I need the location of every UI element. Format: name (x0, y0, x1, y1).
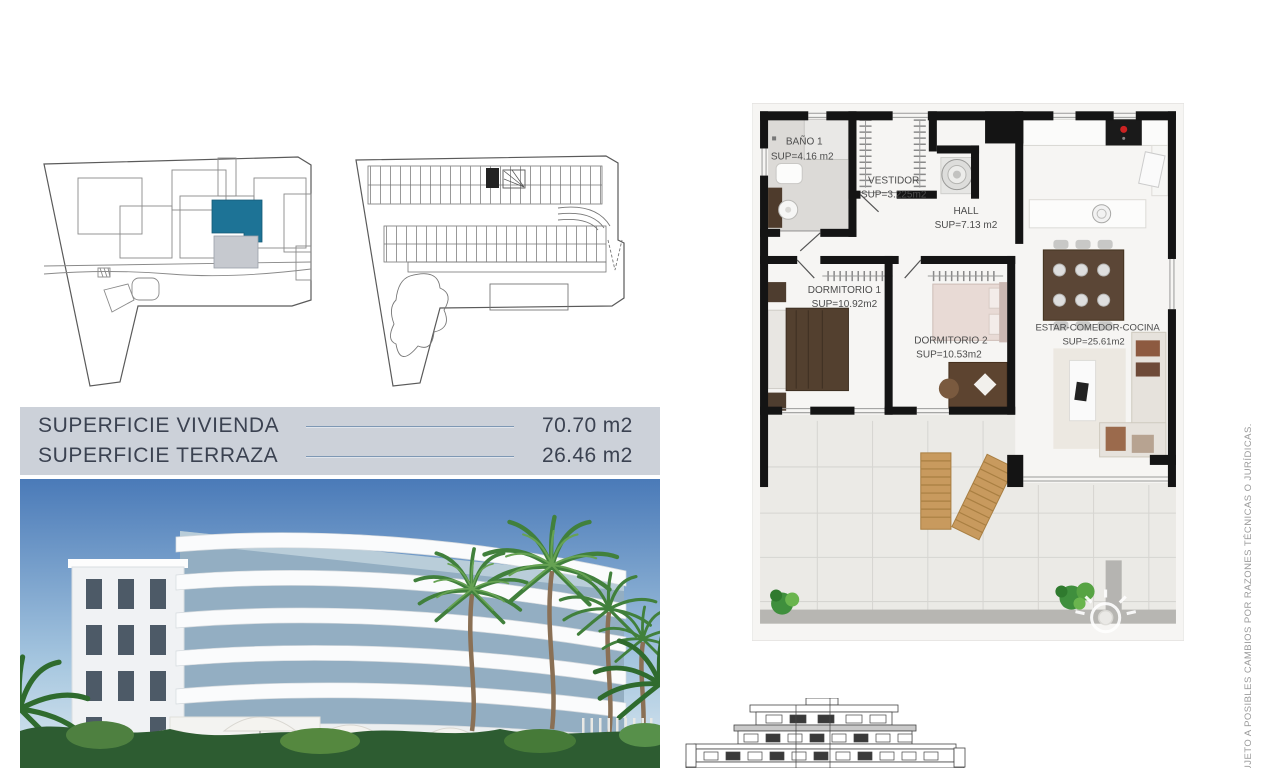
table-row: SUPERFICIE TERRAZA 26.46 m2 (38, 441, 642, 471)
bed-icon (768, 308, 848, 390)
surface-table: SUPERFICIE VIVIENDA 70.70 m2 SUPERFICIE … (20, 407, 660, 475)
legal-disclaimer: UJETO A POSIBLES CAMBIOS POR RAZONES TÉC… (1243, 423, 1254, 768)
bed-icon (933, 282, 1007, 342)
highlighted-terrace (214, 236, 258, 268)
parking-plan (348, 148, 650, 400)
brochure-page: SUPERFICIE VIVIENDA 70.70 m2 SUPERFICIE … (0, 0, 1280, 768)
room-area: SUP=7.13 m2 (935, 220, 998, 231)
terrace-edge (760, 610, 1176, 624)
sink-icon (1093, 205, 1111, 223)
building-photo (20, 479, 660, 768)
lounger-icon (921, 453, 951, 529)
leader-line (306, 456, 514, 457)
desk-icon (939, 362, 1007, 408)
surface-label: SUPERFICIE VIVIENDA (38, 414, 306, 438)
room-area: SUP=10.53m2 (916, 349, 982, 360)
room-name: HALL (953, 206, 979, 217)
room-name: DORMITORIO 1 (808, 285, 882, 296)
room-area: SUP=4.16 m2 (771, 152, 834, 163)
site-key-plan (30, 150, 330, 398)
room-area: SUP=10.92m2 (812, 299, 878, 310)
living-area (1053, 332, 1166, 457)
table-row: SUPERFICIE VIVIENDA 70.70 m2 (38, 411, 642, 441)
dining-table-icon (1043, 240, 1123, 330)
leader-line (306, 426, 514, 427)
room-area: SUP=25.61m2 (1062, 336, 1124, 347)
washbasin-icon (776, 164, 802, 184)
room-name: DORMITORIO 2 (914, 335, 988, 346)
room-name: VESTIDOR (868, 176, 919, 187)
label-bullet (772, 136, 776, 140)
building-elevation (678, 698, 973, 768)
surface-label: SUPERFICIE TERRAZA (38, 444, 306, 468)
room-area: SUP=3.225m2 (861, 190, 927, 201)
tv-icon (1074, 382, 1088, 402)
room-name: BAÑO 1 (786, 134, 823, 147)
floor-plan: BAÑO 1 SUP=4.16 m2 VESTIDOR SUP=3.225m2 … (752, 103, 1184, 641)
surface-value: 26.46 m2 (542, 444, 642, 468)
surface-value: 70.70 m2 (542, 414, 642, 438)
laundry-niche (941, 158, 973, 194)
room-name: ESTAR-COMEDOR-COCINA (1035, 322, 1160, 333)
